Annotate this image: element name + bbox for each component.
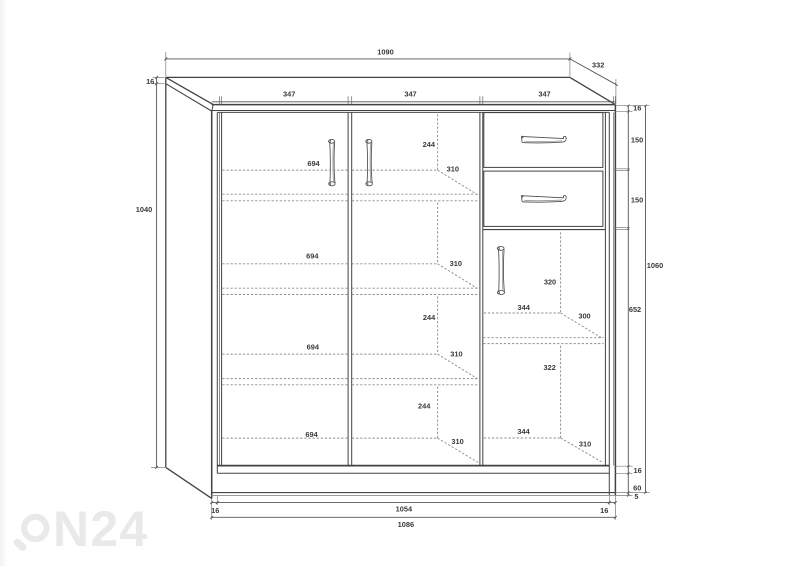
svg-text:1060: 1060 bbox=[647, 261, 663, 270]
svg-text:150: 150 bbox=[631, 195, 643, 204]
svg-text:652: 652 bbox=[629, 305, 641, 314]
svg-text:310: 310 bbox=[579, 439, 591, 448]
svg-text:347: 347 bbox=[538, 90, 550, 99]
svg-text:16: 16 bbox=[600, 506, 608, 515]
svg-text:347: 347 bbox=[283, 90, 295, 99]
svg-text:694: 694 bbox=[306, 252, 319, 261]
svg-text:694: 694 bbox=[305, 430, 318, 439]
svg-text:16: 16 bbox=[633, 466, 641, 475]
svg-text:244: 244 bbox=[423, 313, 436, 322]
svg-text:16: 16 bbox=[211, 506, 219, 515]
svg-text:244: 244 bbox=[418, 401, 431, 410]
svg-text:694: 694 bbox=[307, 342, 320, 351]
svg-text:344: 344 bbox=[518, 303, 531, 312]
svg-text:300: 300 bbox=[578, 312, 590, 321]
svg-text:310: 310 bbox=[447, 165, 459, 174]
svg-text:5: 5 bbox=[634, 492, 638, 501]
svg-text:16: 16 bbox=[633, 104, 641, 113]
svg-text:694: 694 bbox=[307, 159, 320, 168]
svg-text:244: 244 bbox=[423, 140, 436, 149]
svg-text:310: 310 bbox=[450, 349, 462, 358]
svg-text:150: 150 bbox=[631, 136, 643, 145]
svg-text:310: 310 bbox=[451, 437, 463, 446]
svg-text:332: 332 bbox=[592, 60, 604, 69]
svg-text:344: 344 bbox=[517, 427, 530, 436]
svg-text:320: 320 bbox=[544, 278, 556, 287]
svg-text:N24: N24 bbox=[53, 501, 149, 557]
svg-text:347: 347 bbox=[404, 90, 416, 99]
svg-text:16: 16 bbox=[146, 77, 154, 86]
svg-text:1086: 1086 bbox=[398, 520, 414, 529]
svg-text:1040: 1040 bbox=[136, 205, 152, 214]
svg-text:310: 310 bbox=[450, 259, 462, 268]
svg-text:322: 322 bbox=[544, 363, 556, 372]
svg-text:1090: 1090 bbox=[377, 47, 393, 56]
svg-text:1054: 1054 bbox=[396, 504, 413, 513]
